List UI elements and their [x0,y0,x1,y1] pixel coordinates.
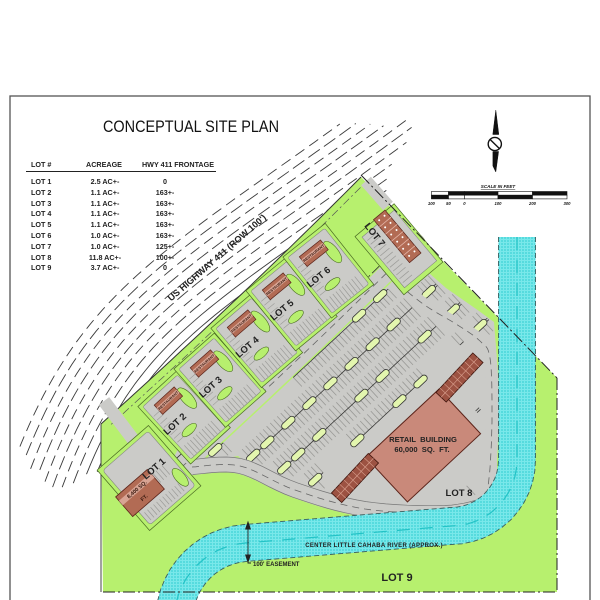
svg-text:1.1 AC+-: 1.1 AC+- [91,220,120,229]
svg-text:100: 100 [495,201,503,206]
svg-text:100' EASEMENT: 100' EASEMENT [253,562,300,568]
svg-text:LOT 9: LOT 9 [381,572,412,584]
svg-text:11.8 AC+-: 11.8 AC+- [89,253,122,262]
svg-text:163+-: 163+- [156,209,175,218]
svg-text:CONCEPTUAL SITE PLAN: CONCEPTUAL SITE PLAN [103,118,279,136]
svg-text:RETAIL BUILDING: RETAIL BUILDING [389,435,457,444]
svg-text:0: 0 [163,177,167,186]
svg-text:163+-: 163+- [156,220,175,229]
svg-text:163+-: 163+- [156,231,175,240]
svg-text:50: 50 [446,201,451,206]
svg-text:LOT 5: LOT 5 [31,220,51,229]
svg-text:1.1 AC+-: 1.1 AC+- [91,199,120,208]
svg-text:LOT 9: LOT 9 [31,263,51,272]
svg-text:1.1 AC+-: 1.1 AC+- [91,188,120,197]
svg-text:1.0 AC+-: 1.0 AC+- [91,231,120,240]
svg-text:LOT 8: LOT 8 [31,253,51,262]
svg-text:LOT 4: LOT 4 [31,209,51,218]
svg-text:LOT 2: LOT 2 [31,188,51,197]
svg-text:LOT 7: LOT 7 [31,242,51,251]
svg-text:163+-: 163+- [156,199,175,208]
svg-text:LOT 6: LOT 6 [31,231,51,240]
svg-text:LOT 1: LOT 1 [31,177,51,186]
svg-text:1.0 AC+-: 1.0 AC+- [91,242,120,251]
svg-text:CENTER LITTLE CAHABA RIVER: CENTER LITTLE CAHABA RIVER (APPROX.) [305,543,443,549]
svg-text:125+-: 125+- [156,242,175,251]
svg-text:HWY 411 FRONTAGE: HWY 411 FRONTAGE [142,160,214,169]
svg-text:LOT #: LOT # [31,160,51,169]
svg-text:ACREAGE: ACREAGE [86,160,122,169]
svg-text:60,000 SQ. FT.: 60,000 SQ. FT. [394,445,449,454]
svg-text:100: 100 [428,201,436,206]
svg-text:300: 300 [564,201,572,206]
svg-text:LOT 3: LOT 3 [31,199,51,208]
svg-text:163+-: 163+- [156,188,175,197]
svg-text:3.7 AC+-: 3.7 AC+- [91,263,120,272]
svg-text:200: 200 [528,201,537,206]
svg-text:LOT 8: LOT 8 [446,488,473,499]
svg-text:SCALE IN FEET: SCALE IN FEET [481,184,517,189]
svg-text:1.1 AC+-: 1.1 AC+- [91,209,120,218]
svg-text:2.5 AC+-: 2.5 AC+- [91,177,120,186]
